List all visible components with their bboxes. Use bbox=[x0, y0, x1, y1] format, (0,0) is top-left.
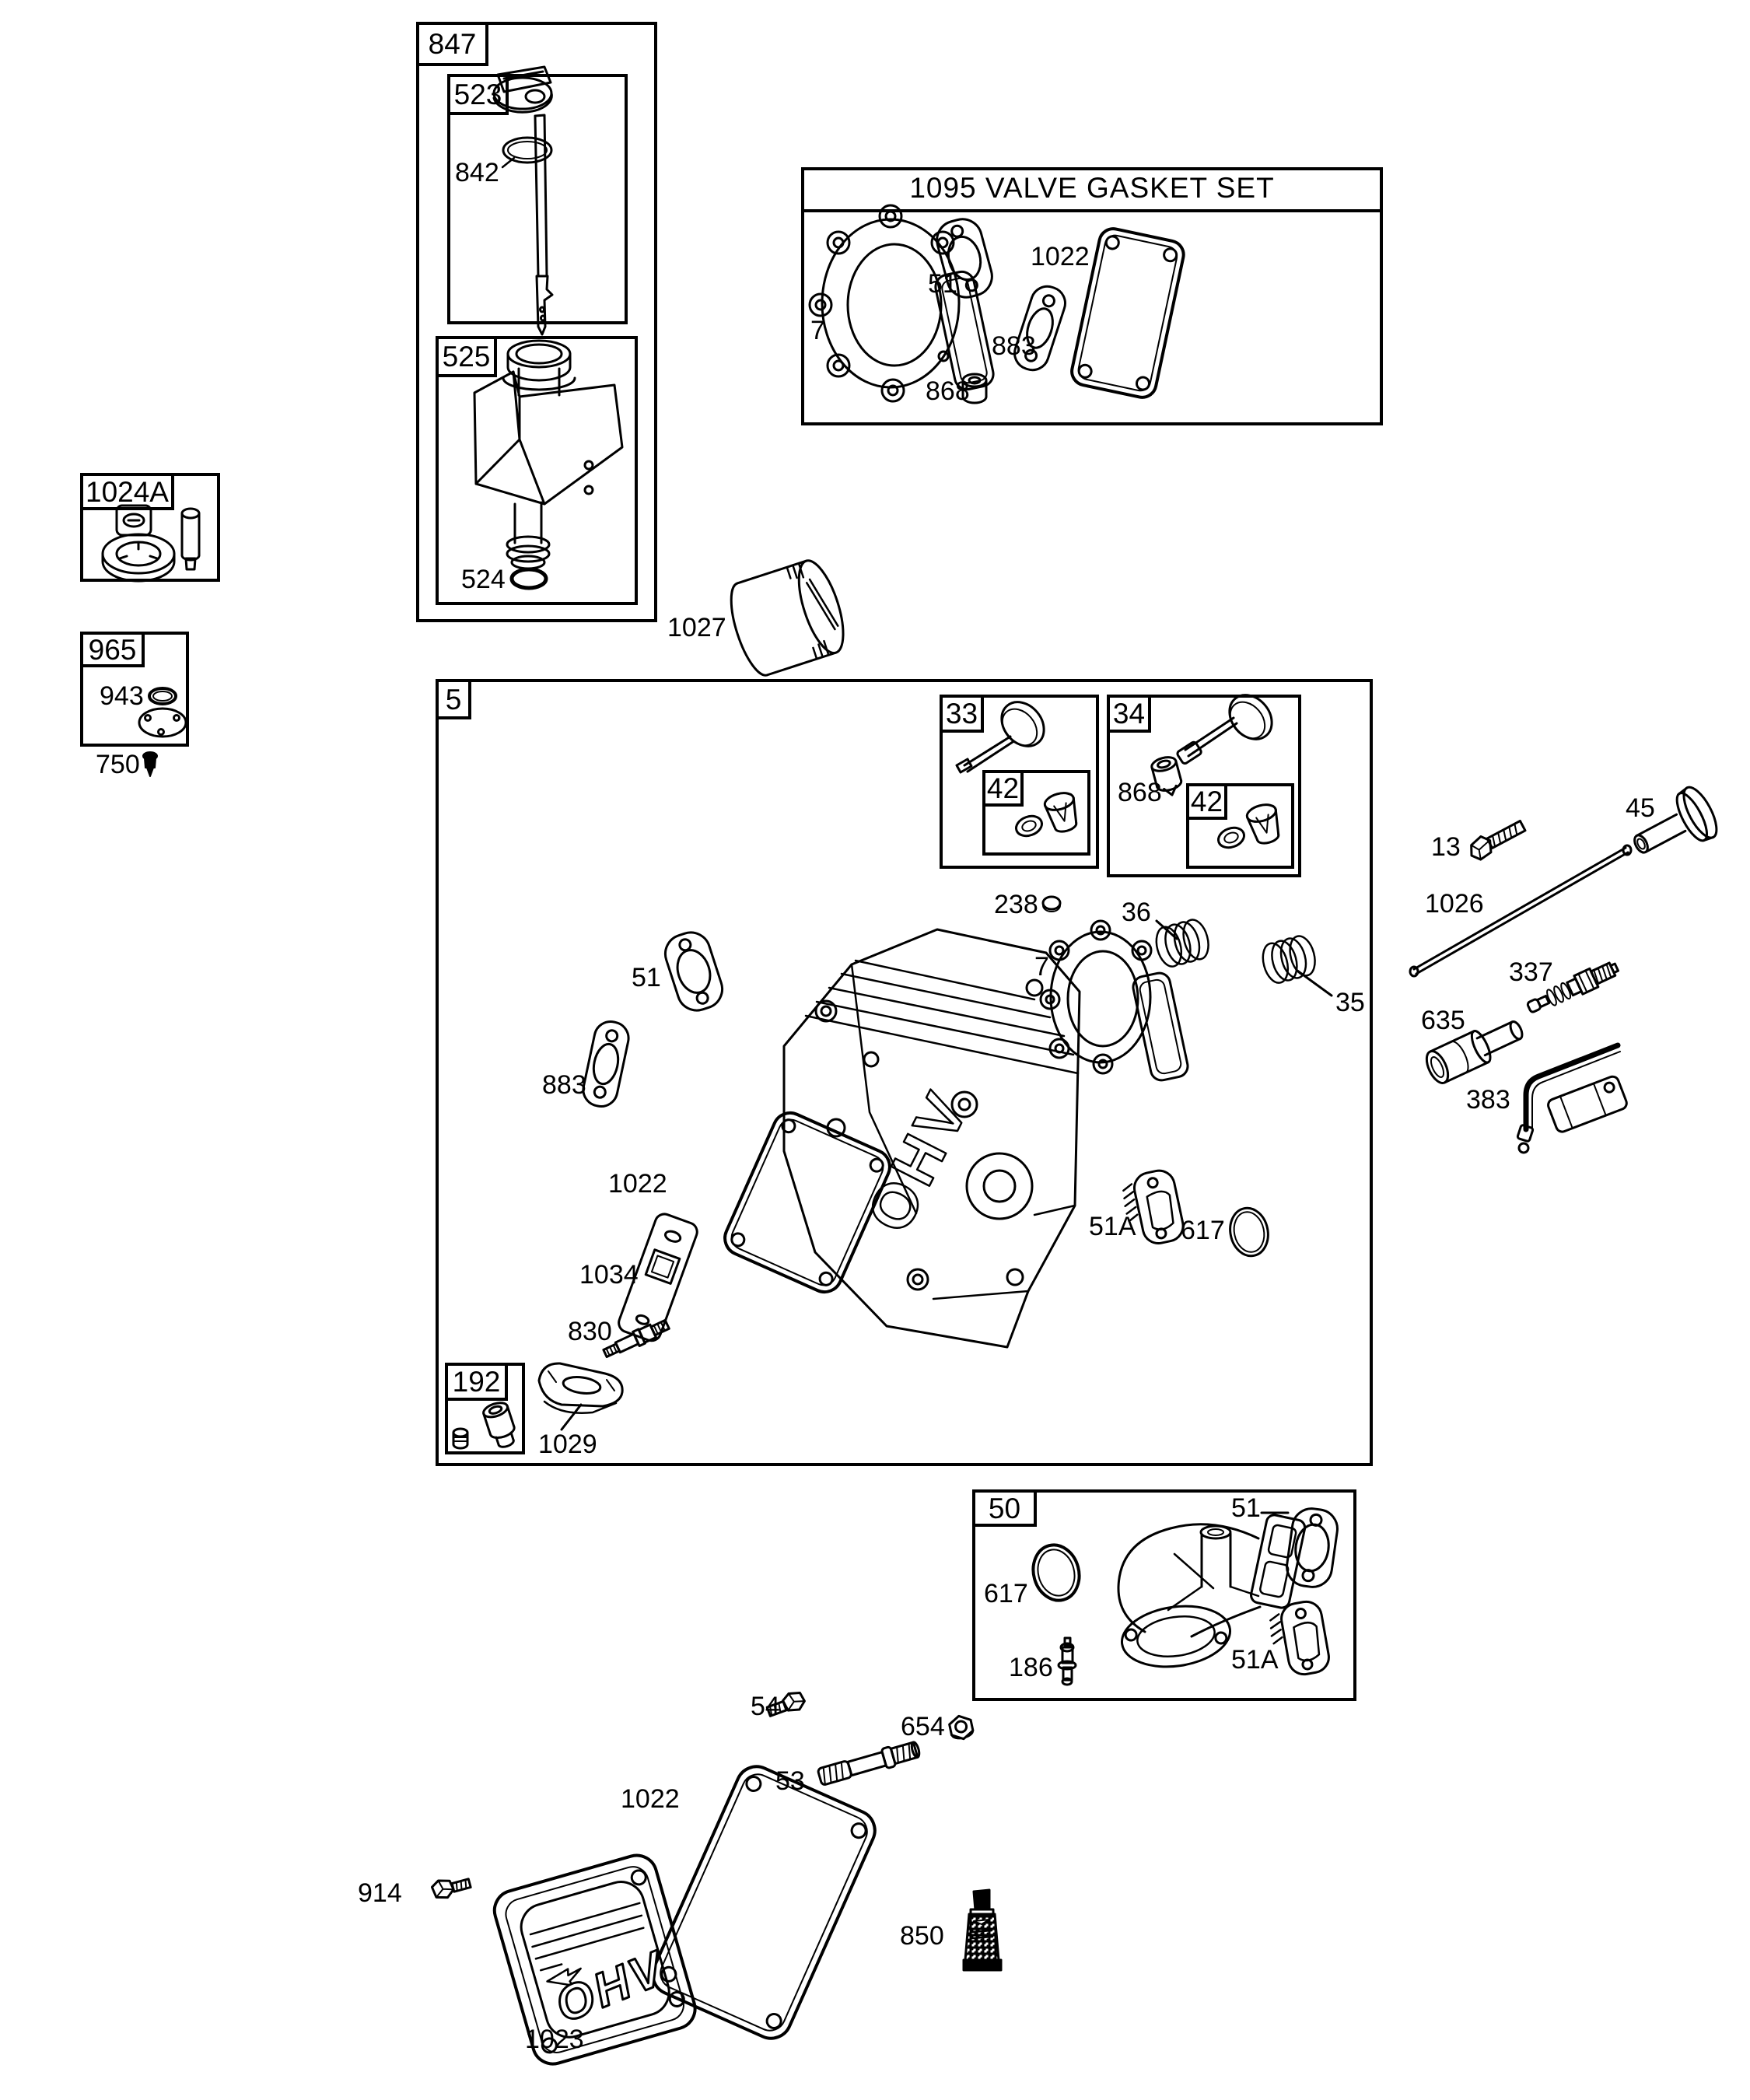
sealant-tube-850-art bbox=[964, 1890, 1001, 1970]
label-51-head: 51 bbox=[632, 964, 661, 991]
valve-cover-1023-art: OHV bbox=[490, 1850, 700, 2068]
label-868-valve: 868 bbox=[1118, 779, 1162, 806]
label-1029: 1029 bbox=[538, 1431, 597, 1458]
label-51-gasket-set: 51 bbox=[928, 271, 957, 297]
label-1027: 1027 bbox=[667, 614, 726, 641]
label-337: 337 bbox=[1509, 959, 1553, 985]
group-box-192-label: 192 bbox=[445, 1363, 508, 1401]
group-box-523-label: 523 bbox=[447, 74, 509, 115]
valve-gasket-set-title: 1095 VALVE GASKET SET bbox=[801, 167, 1383, 212]
label-54: 54 bbox=[751, 1693, 780, 1720]
label-654: 654 bbox=[901, 1713, 945, 1740]
label-883-gasket-set: 883 bbox=[992, 333, 1036, 359]
label-1022-gasket-set: 1022 bbox=[1031, 243, 1090, 270]
group-box-965-label: 965 bbox=[80, 632, 145, 667]
label-1026: 1026 bbox=[1425, 891, 1484, 917]
group-box-525-label: 525 bbox=[436, 336, 497, 377]
label-1022-cover: 1022 bbox=[621, 1786, 680, 1812]
cover-ohv-text: OHV bbox=[548, 1941, 674, 2033]
label-1023: 1023 bbox=[525, 2026, 584, 2053]
nut-654-art bbox=[948, 1713, 975, 1741]
stud-53-art bbox=[817, 1739, 921, 1787]
label-1034: 1034 bbox=[579, 1262, 639, 1288]
label-51-manifold: 51 bbox=[1231, 1495, 1261, 1521]
oil-filter-1027-art bbox=[723, 555, 852, 680]
label-186: 186 bbox=[1009, 1654, 1053, 1681]
label-238: 238 bbox=[994, 891, 1038, 918]
group-box-1024a-label: 1024A bbox=[80, 473, 174, 510]
group-box-33-label: 33 bbox=[940, 695, 984, 733]
group-box-42-intake-label: 42 bbox=[982, 770, 1024, 807]
label-750: 750 bbox=[96, 751, 140, 778]
label-1022-head: 1022 bbox=[608, 1171, 667, 1197]
label-7-gasket-set: 7 bbox=[810, 317, 825, 344]
label-36: 36 bbox=[1122, 899, 1151, 926]
label-914: 914 bbox=[358, 1880, 402, 1906]
group-box-50-label: 50 bbox=[972, 1489, 1037, 1527]
label-943: 943 bbox=[100, 683, 144, 709]
label-635: 635 bbox=[1421, 1007, 1465, 1034]
label-617-manifold: 617 bbox=[984, 1580, 1028, 1607]
screw-750-art bbox=[143, 752, 157, 776]
label-383: 383 bbox=[1466, 1087, 1510, 1113]
bolt-914-art bbox=[431, 1873, 472, 1901]
label-524: 524 bbox=[461, 566, 506, 593]
label-51a-head: 51A bbox=[1089, 1213, 1136, 1240]
label-617-head: 617 bbox=[1181, 1217, 1225, 1244]
label-13: 13 bbox=[1431, 834, 1461, 860]
group-box-42-exhaust-label: 42 bbox=[1186, 783, 1227, 820]
parts-diagram-page: 847 523 525 1024A 965 1095 VALVE GASKET … bbox=[0, 0, 1750, 2100]
bolt-13-art bbox=[1465, 817, 1527, 863]
label-51a-manifold: 51A bbox=[1231, 1647, 1279, 1673]
group-box-847-label: 847 bbox=[416, 22, 488, 66]
label-35: 35 bbox=[1335, 989, 1365, 1016]
label-850: 850 bbox=[900, 1923, 944, 1949]
label-830: 830 bbox=[568, 1318, 612, 1345]
group-box-34-label: 34 bbox=[1107, 695, 1151, 733]
label-868-gasket-set: 868 bbox=[926, 378, 970, 404]
label-45: 45 bbox=[1626, 795, 1655, 821]
label-842: 842 bbox=[455, 159, 499, 186]
spark-plug-wrench-383-art bbox=[1517, 1045, 1629, 1153]
valve-cover-gasket-1022-art bbox=[646, 1760, 881, 2045]
label-53: 53 bbox=[775, 1768, 805, 1794]
label-7-head: 7 bbox=[1034, 954, 1049, 980]
label-883-head: 883 bbox=[542, 1072, 586, 1098]
group-box-5-label: 5 bbox=[436, 679, 471, 719]
